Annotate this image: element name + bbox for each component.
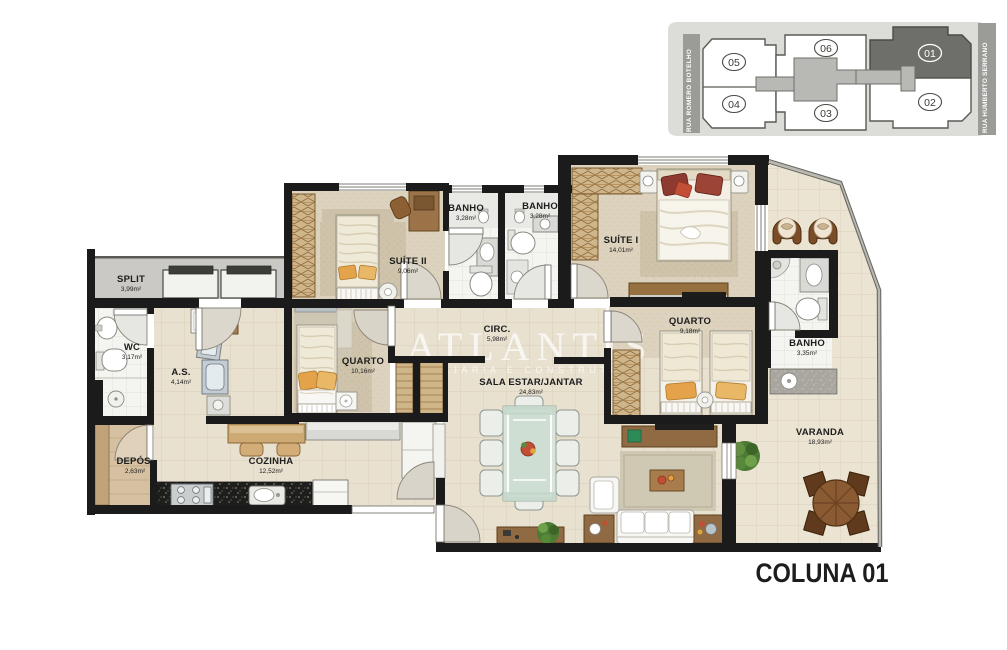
svg-text:9,06m²: 9,06m² [398,268,419,275]
svg-text:05: 05 [728,57,740,69]
svg-text:RUA HUMBERTO SERRANO: RUA HUMBERTO SERRANO [982,42,989,133]
svg-text:12,52m²: 12,52m² [259,468,284,475]
svg-text:BANHO: BANHO [522,201,558,212]
svg-text:10,16m²: 10,16m² [351,368,376,375]
svg-text:CIRC.: CIRC. [484,324,511,335]
svg-text:BANHO: BANHO [448,203,484,214]
svg-text:QUARTO: QUARTO [342,356,384,367]
svg-text:3,17m²: 3,17m² [122,354,143,361]
svg-text:3,28m²: 3,28m² [530,213,551,220]
svg-text:4,14m²: 4,14m² [171,379,192,386]
svg-text:BANHO: BANHO [789,338,825,349]
svg-text:06: 06 [820,43,832,55]
svg-text:DEPÓS.: DEPÓS. [116,455,153,467]
svg-text:2,63m²: 2,63m² [125,468,146,475]
svg-text:14,01m²: 14,01m² [609,247,634,254]
svg-text:9,18m²: 9,18m² [680,328,701,335]
svg-text:SUÍTE II: SUÍTE II [389,256,427,267]
svg-text:WC: WC [124,342,140,353]
svg-text:02: 02 [924,97,936,109]
svg-text:SALA ESTAR/JANTAR: SALA ESTAR/JANTAR [479,377,583,388]
svg-text:COZINHA: COZINHA [249,456,294,467]
svg-text:A.S.: A.S. [171,367,190,378]
svg-text:SUÍTE I: SUÍTE I [604,235,639,246]
svg-text:5,98m²: 5,98m² [487,336,508,343]
svg-text:18,93m²: 18,93m² [808,439,833,446]
svg-text:3,35m²: 3,35m² [797,350,818,357]
svg-text:3,99m²: 3,99m² [121,286,142,293]
svg-text:VARANDA: VARANDA [796,427,844,438]
svg-text:SPLIT: SPLIT [117,274,145,285]
svg-text:24,83m²: 24,83m² [519,389,544,396]
svg-text:COLUNA 01: COLUNA 01 [756,558,889,588]
svg-text:03: 03 [820,108,832,120]
svg-text:01: 01 [924,48,936,60]
svg-text:QUARTO: QUARTO [669,316,711,327]
svg-text:3,28m²: 3,28m² [456,215,477,222]
svg-text:04: 04 [728,99,740,111]
svg-text:RUA ROMERO BOTELHO: RUA ROMERO BOTELHO [686,49,693,132]
